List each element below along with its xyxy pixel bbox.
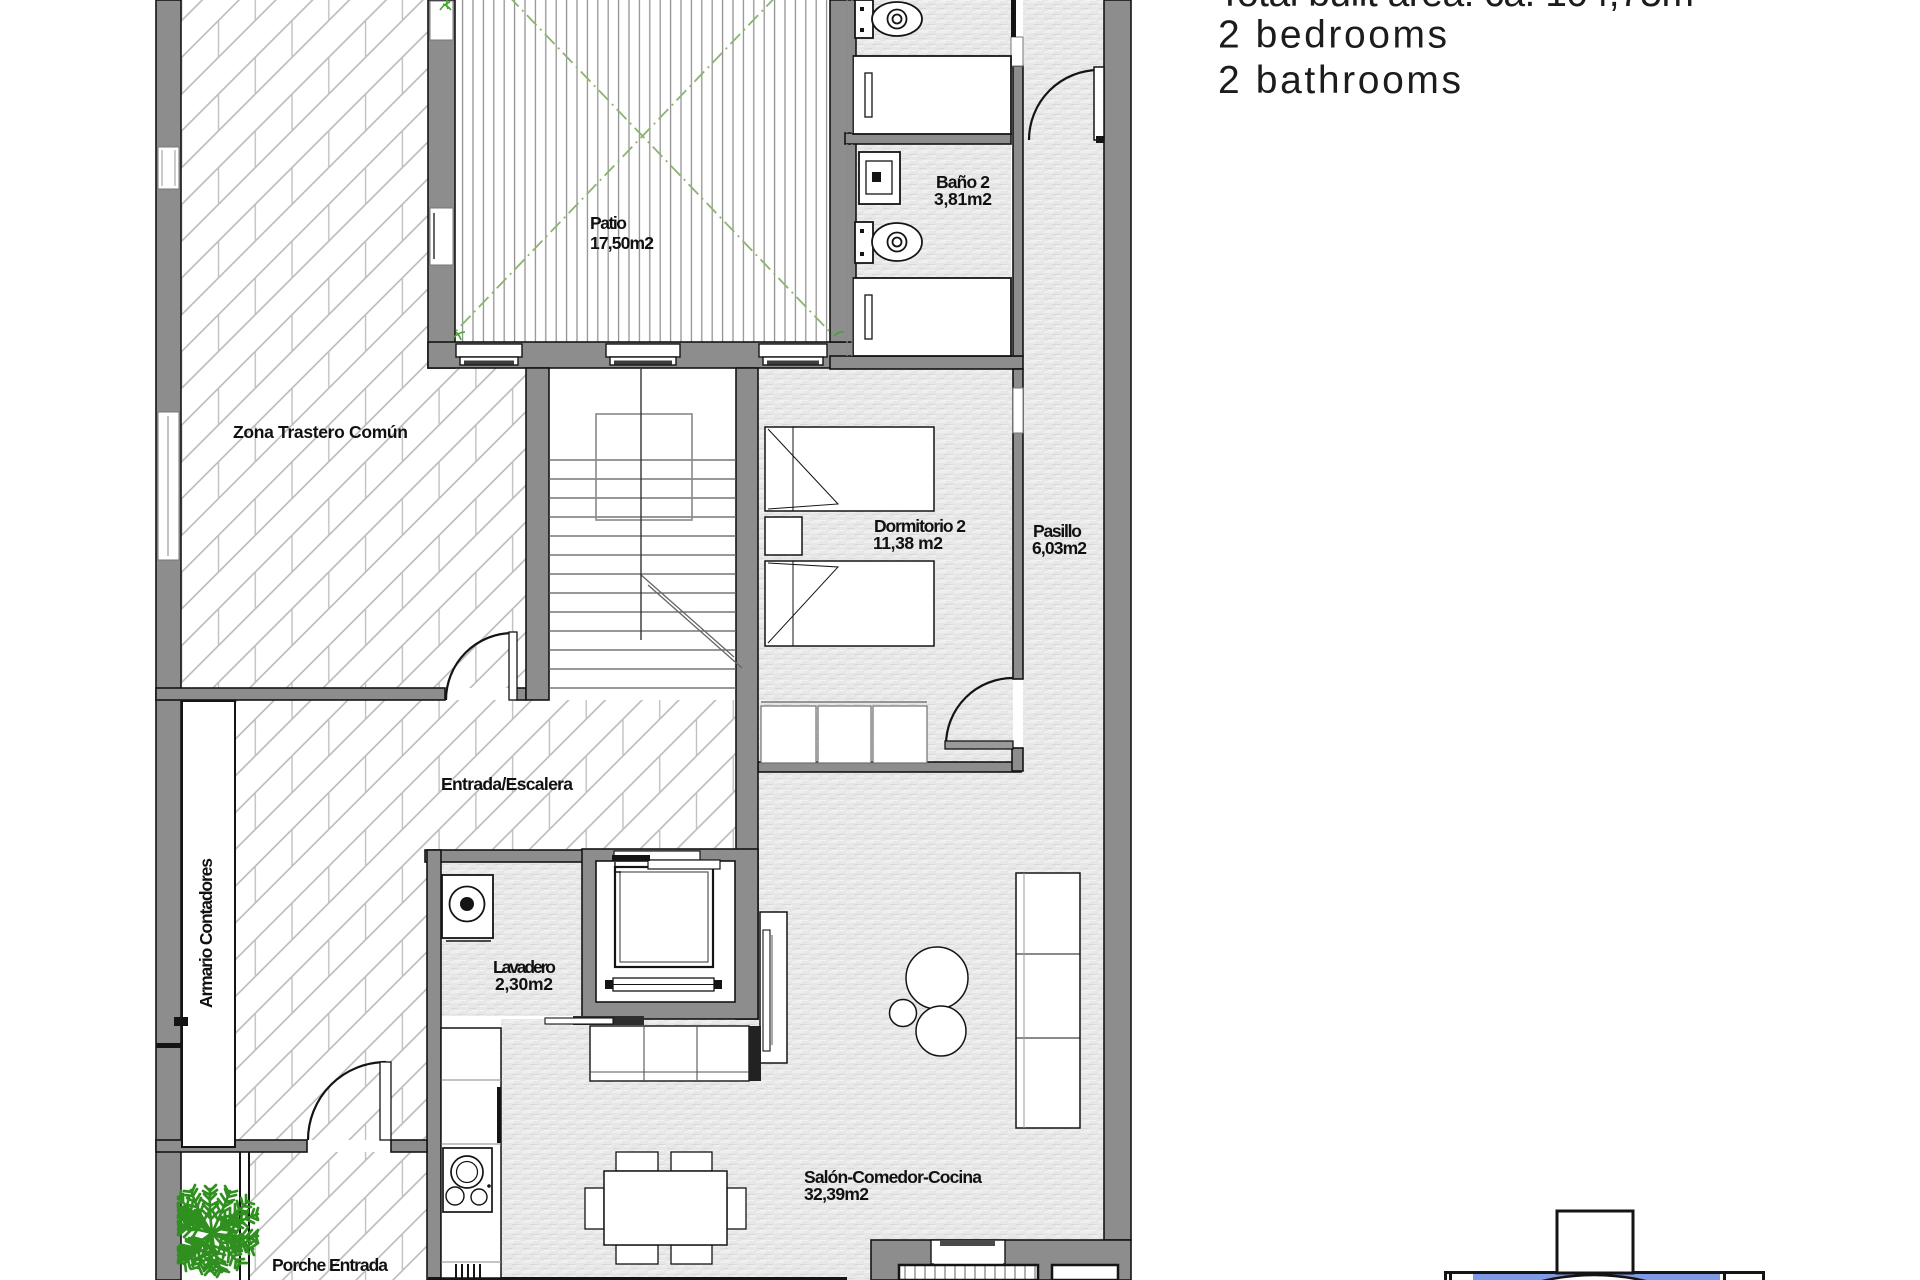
svg-text:Patio: Patio — [590, 213, 627, 233]
svg-text:Entrada/Escalera: Entrada/Escalera — [441, 774, 573, 794]
svg-text:32,39m2: 32,39m2 — [804, 1184, 869, 1204]
svg-text:3,81m2: 3,81m2 — [934, 189, 992, 209]
svg-text:Porche Entrada: Porche Entrada — [272, 1255, 388, 1275]
svg-text:11,38 m2: 11,38 m2 — [873, 533, 943, 553]
svg-text:6,03m2: 6,03m2 — [1032, 538, 1087, 558]
svg-text:2,30m2: 2,30m2 — [495, 974, 553, 994]
svg-text:2 bedrooms: 2 bedrooms — [1218, 14, 1447, 57]
svg-text:Zona Trastero Común: Zona Trastero Común — [233, 422, 408, 442]
svg-text:17,50m2: 17,50m2 — [590, 233, 654, 253]
svg-text:Armario Contadores: Armario Contadores — [196, 858, 216, 1008]
